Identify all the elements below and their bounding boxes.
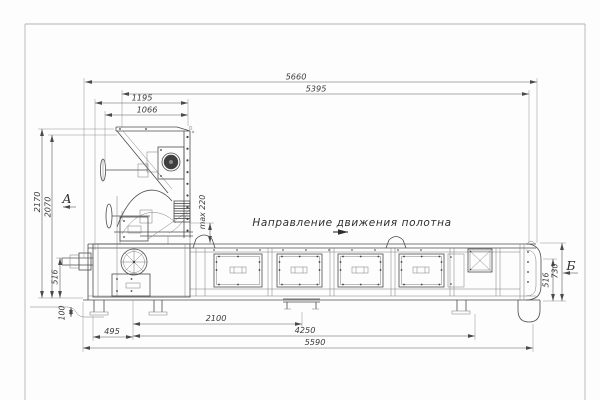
dimension-base-length: 5590 bbox=[83, 337, 533, 348]
dim-label: 2070 bbox=[43, 197, 53, 218]
drive-base-plate bbox=[112, 274, 150, 296]
access-panel bbox=[338, 254, 383, 287]
view-a-label: А bbox=[61, 191, 76, 207]
dimension-tail-height: 730 bbox=[551, 243, 563, 301]
drive-unit bbox=[93, 244, 190, 297]
hopper bbox=[116, 127, 194, 194]
support-legs bbox=[90, 299, 470, 315]
dim-label: 5660 bbox=[286, 72, 307, 82]
access-panel bbox=[399, 254, 444, 287]
mill-access-plate bbox=[120, 217, 148, 241]
access-panel-narrow bbox=[448, 254, 464, 287]
dim-label: 495 bbox=[104, 326, 120, 336]
dimension-hopper-width: 1066 bbox=[105, 105, 188, 116]
handwheel-upper bbox=[100, 159, 148, 181]
engineering-drawing: 5660 5395 1195 1066 2170 2070 516 max 22… bbox=[0, 0, 600, 400]
bearing-stand bbox=[193, 235, 215, 248]
mill-section bbox=[100, 127, 194, 245]
dim-label: 1066 bbox=[137, 105, 158, 115]
direction-text: Направление движения полотна bbox=[252, 217, 451, 229]
dimension-drive-offset: 495 bbox=[93, 326, 133, 337]
dimension-ground-clearance: 100 bbox=[58, 306, 72, 321]
dimension-support-span: 4250 bbox=[133, 325, 475, 336]
access-panel bbox=[277, 254, 322, 287]
bearing-stand bbox=[386, 237, 406, 249]
dim-label: 730 bbox=[551, 264, 560, 279]
conveyor-section bbox=[30, 235, 541, 322]
view-a-text: А bbox=[61, 191, 71, 206]
dim-label: 5395 bbox=[306, 84, 327, 94]
dim-label: 100 bbox=[58, 306, 67, 321]
dim-label: 1195 bbox=[132, 93, 153, 103]
dim-label: 516 bbox=[51, 270, 60, 285]
access-panel bbox=[214, 254, 262, 287]
dim-label: 4250 bbox=[295, 325, 316, 335]
dimension-overall-top: 5660 bbox=[85, 72, 537, 83]
dimension-overall-height: 2170 bbox=[32, 129, 42, 298]
direction-annotation: Направление движения полотна bbox=[252, 217, 451, 232]
dimension-frame-top: 5395 bbox=[122, 84, 529, 95]
dim-label: 2170 bbox=[32, 192, 42, 213]
view-b-text: Б bbox=[565, 258, 575, 273]
dimension-section-span: 2100 bbox=[133, 313, 302, 324]
cross-grille bbox=[468, 249, 492, 272]
dim-label: 2100 bbox=[206, 313, 227, 323]
dim-label: 5590 bbox=[305, 337, 326, 347]
dim-label: max 220 bbox=[198, 195, 207, 229]
tail-section bbox=[518, 241, 541, 322]
drawing-canvas: 5660 5395 1195 1066 2170 2070 516 max 22… bbox=[0, 0, 600, 400]
dim-label: 516 bbox=[542, 273, 551, 288]
view-b-label: Б bbox=[563, 258, 578, 273]
